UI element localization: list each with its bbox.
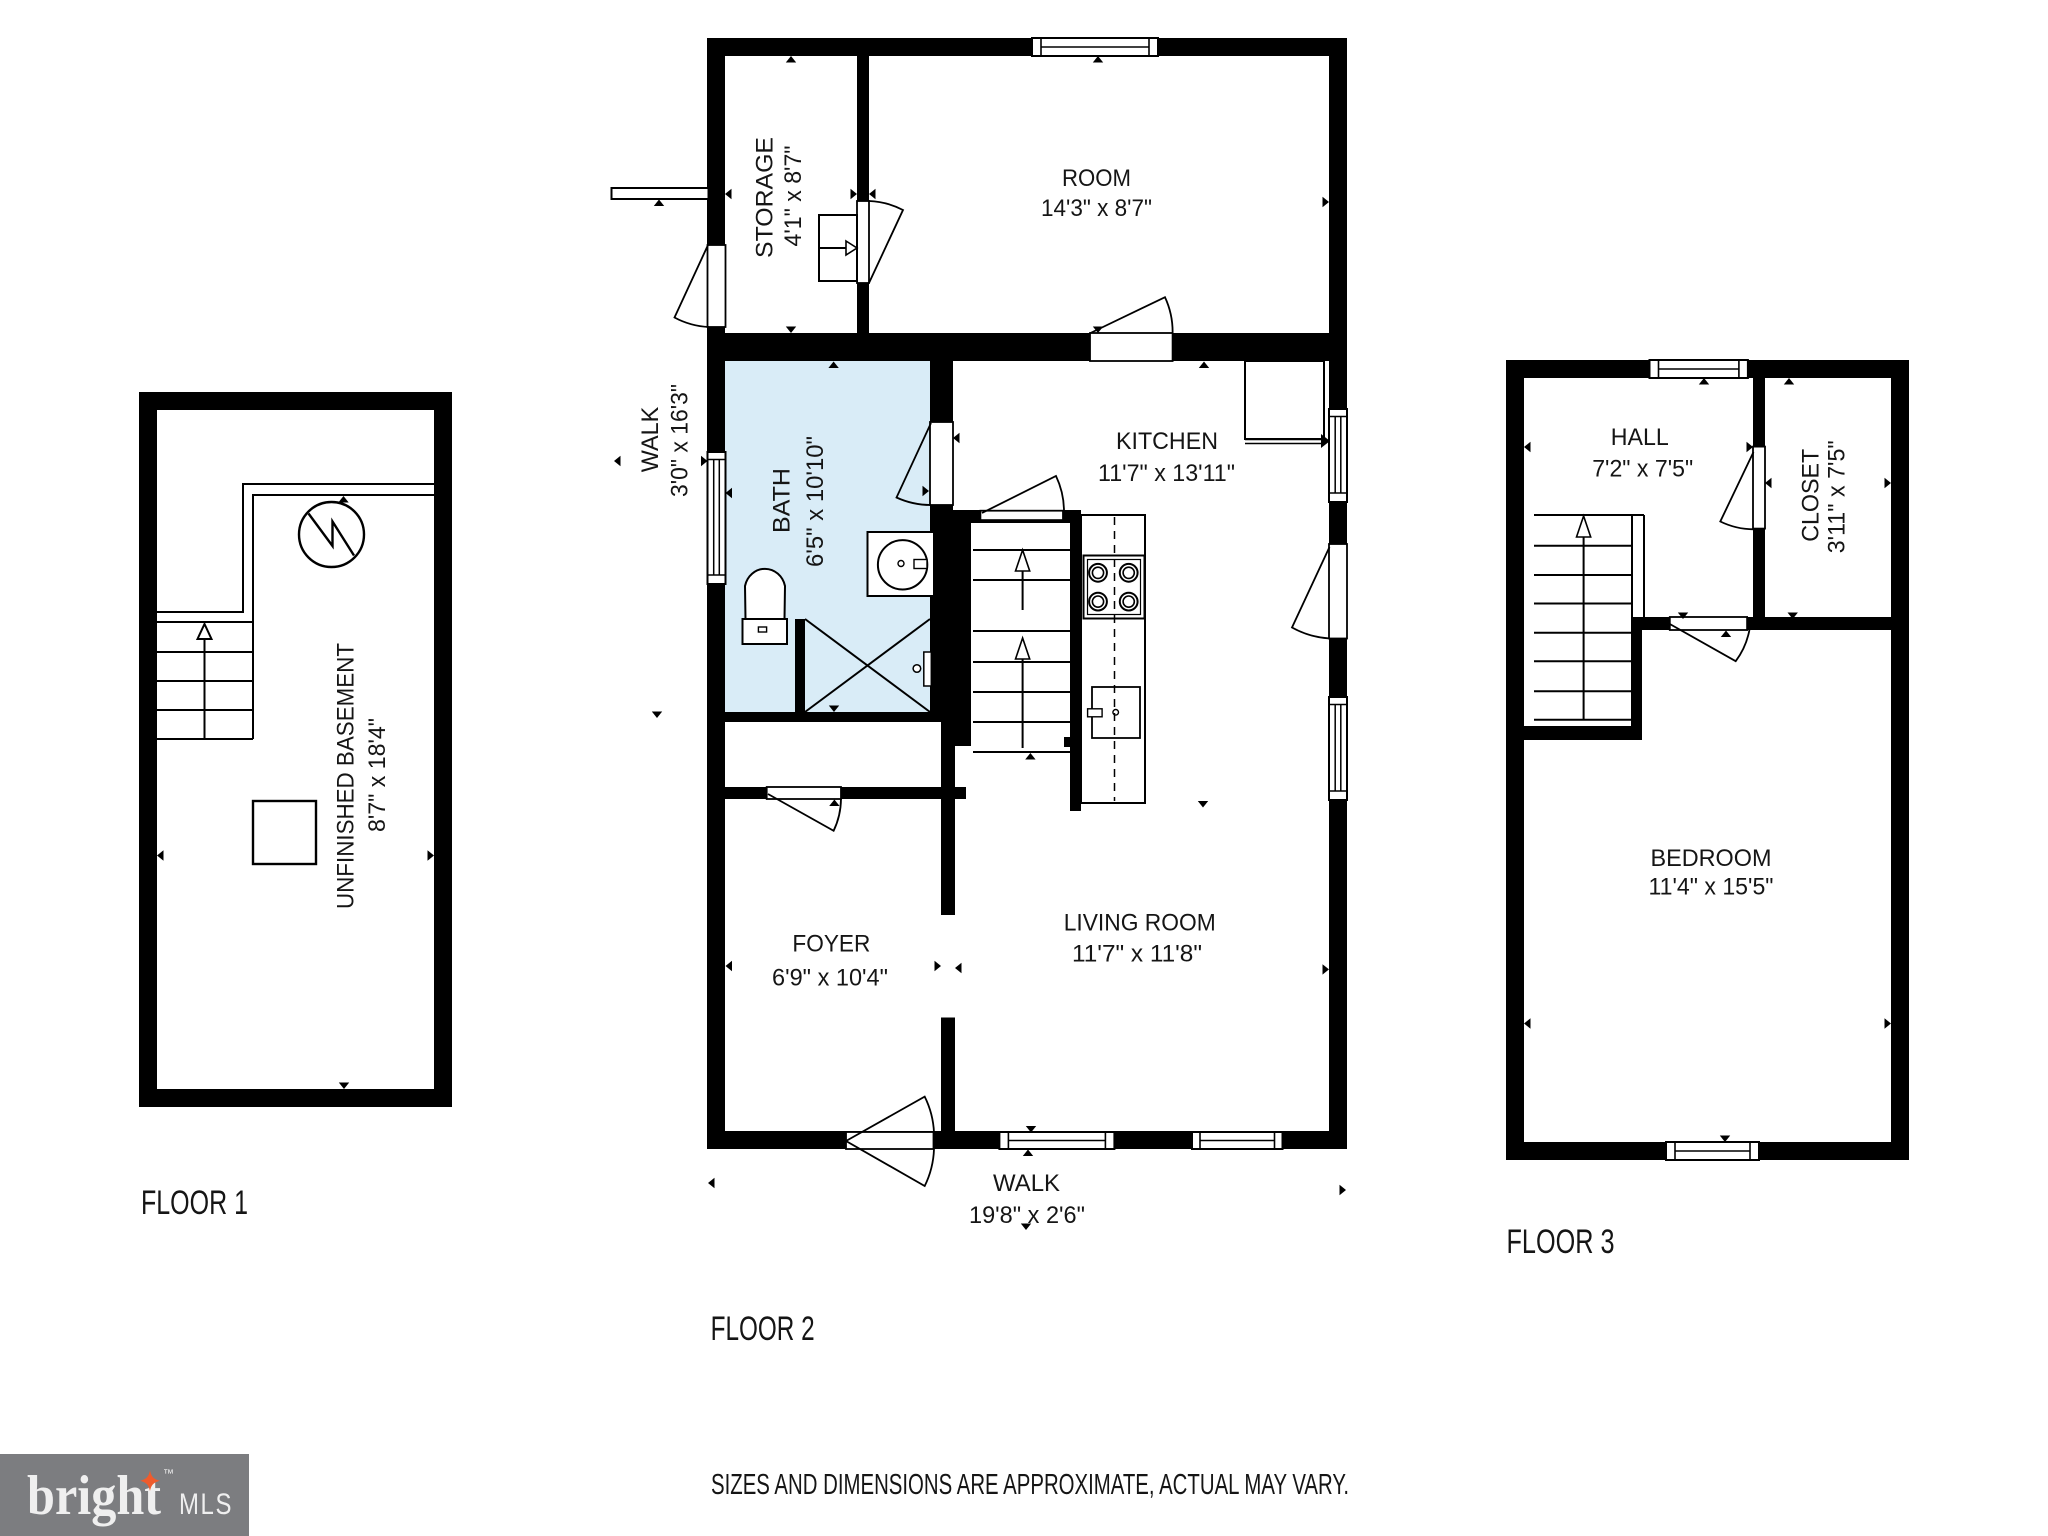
svg-text:FLOOR 2: FLOOR 2 xyxy=(711,1310,815,1348)
svg-text:ROOM: ROOM xyxy=(1062,165,1131,192)
svg-text:UNFINISHED BASEMENT: UNFINISHED BASEMENT xyxy=(333,643,360,909)
svg-text:7'2" x 7'5": 7'2" x 7'5" xyxy=(1592,456,1693,483)
svg-text:BATH: BATH xyxy=(769,468,796,533)
svg-text:SIZES AND DIMENSIONS ARE APPRO: SIZES AND DIMENSIONS ARE APPROXIMATE, AC… xyxy=(711,1469,1349,1501)
svg-text:19'8" x 2'6": 19'8" x 2'6" xyxy=(969,1202,1085,1229)
svg-text:8'7" x 18'4": 8'7" x 18'4" xyxy=(364,718,391,832)
svg-text:14'3" x 8'7": 14'3" x 8'7" xyxy=(1041,195,1152,222)
svg-text:WALK: WALK xyxy=(637,406,664,472)
svg-text:CLOSET: CLOSET xyxy=(1798,449,1825,542)
svg-text:LIVING ROOM: LIVING ROOM xyxy=(1064,910,1216,937)
svg-text:11'7" x 13'11": 11'7" x 13'11" xyxy=(1098,460,1235,487)
svg-text:BEDROOM: BEDROOM xyxy=(1651,845,1772,872)
svg-text:6'5" x 10'10": 6'5" x 10'10" xyxy=(802,436,829,567)
svg-text:MLS: MLS xyxy=(179,1488,233,1521)
svg-text:STORAGE: STORAGE xyxy=(752,137,779,258)
svg-text:FOYER: FOYER xyxy=(792,930,870,957)
svg-text:3'11" x 7'5": 3'11" x 7'5" xyxy=(1824,440,1851,553)
svg-text:WALK: WALK xyxy=(993,1170,1061,1197)
svg-text:11'4" x 15'5": 11'4" x 15'5" xyxy=(1649,874,1774,901)
svg-text:6'9" x 10'4": 6'9" x 10'4" xyxy=(772,965,888,992)
svg-text:FLOOR 1: FLOOR 1 xyxy=(141,1184,248,1222)
svg-text:3'0" x 16'3": 3'0" x 16'3" xyxy=(667,384,694,497)
svg-text:HALL: HALL xyxy=(1611,424,1669,451)
svg-text:FLOOR 3: FLOOR 3 xyxy=(1507,1223,1615,1261)
svg-text:™: ™ xyxy=(163,1468,174,1480)
svg-text:11'7" x 11'8": 11'7" x 11'8" xyxy=(1072,941,1202,968)
svg-text:4'1" x 8'7": 4'1" x 8'7" xyxy=(780,146,807,247)
svg-text:KITCHEN: KITCHEN xyxy=(1116,428,1218,455)
svg-text:bright: bright xyxy=(27,1465,161,1527)
